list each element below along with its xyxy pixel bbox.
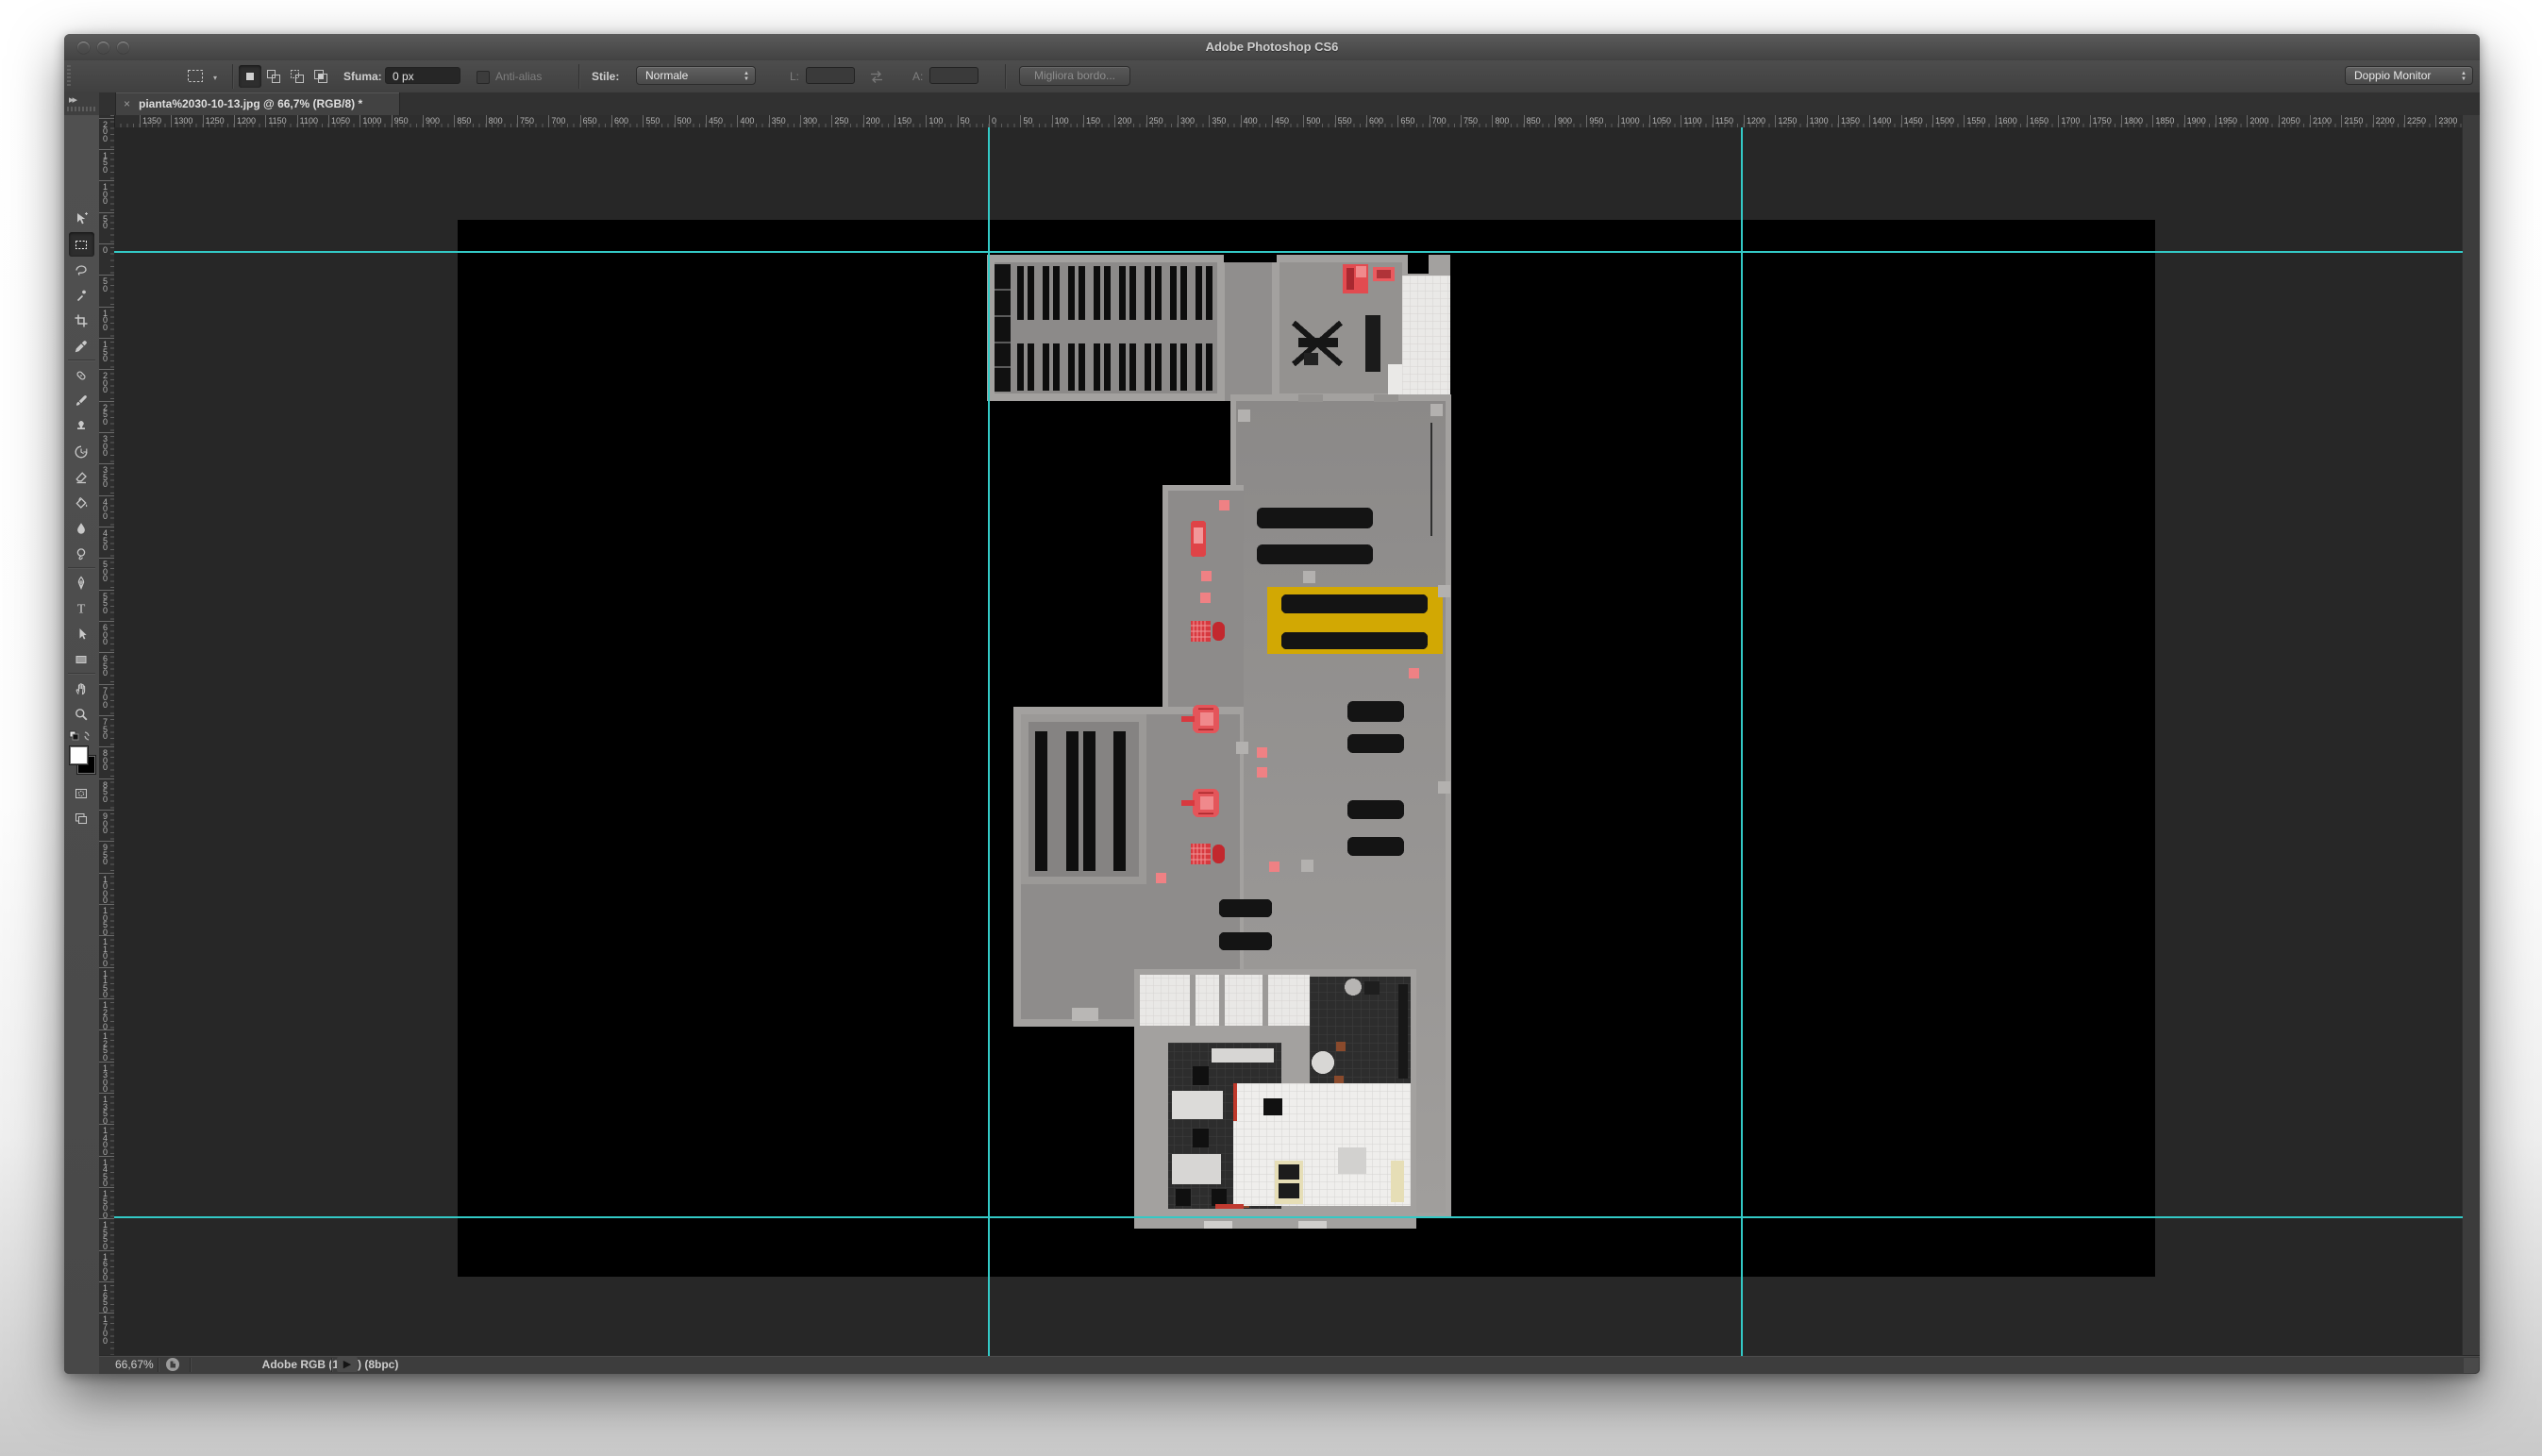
tool-preset-icon[interactable] bbox=[185, 68, 206, 88]
antialias-label: Anti-alias bbox=[495, 70, 542, 83]
refine-edge-button[interactable]: Migliora bordo... bbox=[1019, 66, 1130, 86]
tools-separator bbox=[68, 673, 95, 674]
width-label: L: bbox=[790, 70, 799, 83]
screen-mode-icon bbox=[74, 812, 89, 827]
guide-vertical-right bbox=[1741, 127, 1743, 1356]
history-brush-tool-button[interactable] bbox=[69, 440, 94, 464]
paint-bucket-tool-button[interactable] bbox=[69, 491, 94, 515]
brush-icon bbox=[74, 393, 89, 409]
eyedropper-icon bbox=[74, 339, 89, 354]
brush-tool-button[interactable] bbox=[69, 389, 94, 413]
eraser-tool-button[interactable] bbox=[69, 465, 94, 490]
crop-icon bbox=[74, 313, 89, 328]
options-bar: ▾ Sfuma: 0 px Anti-alias Stile: Normale bbox=[64, 60, 2480, 93]
type-tool-button[interactable]: T bbox=[69, 596, 94, 621]
hand-icon bbox=[74, 681, 89, 696]
history-brush-icon bbox=[74, 444, 89, 460]
status-separator bbox=[331, 1358, 332, 1372]
window-title: Adobe Photoshop CS6 bbox=[64, 40, 2480, 54]
new-selection-button[interactable] bbox=[239, 65, 261, 88]
dodge-tool-button[interactable] bbox=[69, 542, 94, 566]
status-bar: 66,67% Adobe RGB (1998) (8bpc) ▶ bbox=[99, 1355, 2480, 1374]
options-separator bbox=[232, 64, 233, 89]
zoom-icon bbox=[74, 707, 89, 722]
style-label: Stile: bbox=[592, 70, 619, 83]
clone-stamp-tool-button[interactable] bbox=[69, 414, 94, 439]
document-status-icon[interactable] bbox=[165, 1357, 180, 1374]
magic-wand-tool-button[interactable] bbox=[69, 283, 94, 308]
spot-healing-brush-tool-button[interactable] bbox=[69, 363, 94, 388]
document-tab-title: pianta%2030-10-13.jpg @ 66,7% (RGB/8) * bbox=[139, 92, 362, 115]
type-icon: T bbox=[74, 601, 89, 616]
intersect-selection-button[interactable] bbox=[309, 65, 332, 88]
close-tab-icon[interactable]: × bbox=[124, 92, 130, 115]
svg-text:T: T bbox=[77, 603, 86, 617]
status-separator bbox=[158, 1358, 159, 1372]
screen-mode-button[interactable] bbox=[69, 807, 94, 831]
tools-panel-grip[interactable] bbox=[67, 107, 95, 111]
title-bar[interactable]: Adobe Photoshop CS6 bbox=[64, 34, 2480, 61]
rectangular-marquee-tool-button[interactable] bbox=[69, 232, 94, 257]
height-input[interactable] bbox=[929, 67, 978, 84]
lasso-tool-button[interactable] bbox=[69, 258, 94, 282]
options-bar-grip[interactable] bbox=[67, 65, 71, 88]
add-to-selection-button[interactable] bbox=[262, 65, 285, 88]
zoom-level-field[interactable]: 66,67% bbox=[115, 1358, 154, 1371]
move-icon bbox=[74, 211, 89, 226]
move-tool-button[interactable] bbox=[69, 207, 94, 231]
lasso-icon bbox=[74, 262, 89, 277]
window-resize-grip[interactable] bbox=[2464, 1358, 2479, 1373]
pen-icon bbox=[74, 576, 89, 591]
paint-bucket-icon bbox=[74, 495, 89, 510]
photoshop-window: Adobe Photoshop CS6 ▾ Sfuma: 0 px bbox=[64, 34, 2480, 1374]
status-separator bbox=[190, 1358, 191, 1372]
spot-healing-brush-icon bbox=[74, 368, 89, 383]
antialias-checkbox[interactable] bbox=[477, 71, 490, 84]
width-input[interactable] bbox=[806, 67, 855, 84]
rectangle-shape-tool-button[interactable] bbox=[69, 647, 94, 672]
subtract-from-selection-button[interactable] bbox=[286, 65, 309, 88]
quick-mask-button[interactable] bbox=[69, 781, 94, 806]
dodge-icon bbox=[74, 546, 89, 561]
blur-tool-button[interactable] bbox=[69, 516, 94, 541]
guide-vertical-left bbox=[988, 127, 990, 1356]
status-flyout-arrow[interactable]: ▶ bbox=[337, 1357, 358, 1372]
feather-label: Sfuma: bbox=[343, 70, 382, 83]
tools-panel-header[interactable]: ▸▸ bbox=[64, 92, 99, 116]
zoom-tool-button[interactable] bbox=[69, 702, 94, 727]
blur-icon bbox=[74, 521, 89, 536]
rectangular-marquee-icon bbox=[74, 237, 89, 252]
pen-tool-button[interactable] bbox=[69, 571, 94, 595]
style-select[interactable]: Normale ▲▼ bbox=[636, 66, 756, 85]
collapse-panel-icon[interactable]: ▸▸ bbox=[69, 93, 75, 106]
options-separator bbox=[1005, 64, 1006, 89]
guide-horizontal-bottom bbox=[114, 1216, 2463, 1218]
height-label: A: bbox=[912, 70, 923, 83]
clone-stamp-icon bbox=[74, 419, 89, 434]
tools-panel: T bbox=[64, 115, 100, 1374]
ruler-horizontal[interactable]: 1350130012501200115011001050100095090085… bbox=[114, 115, 2463, 128]
hand-tool-button[interactable] bbox=[69, 677, 94, 701]
color-profile-status[interactable]: Adobe RGB (1998) (8bpc) bbox=[203, 1358, 458, 1371]
guide-horizontal-top bbox=[114, 251, 2463, 253]
path-selection-icon bbox=[74, 627, 89, 642]
magic-wand-icon bbox=[74, 288, 89, 303]
floor-plan bbox=[987, 253, 1451, 1229]
document-tab-bar: × pianta%2030-10-13.jpg @ 66,7% (RGB/8) … bbox=[99, 92, 2480, 116]
tools-separator bbox=[68, 360, 95, 360]
ruler-vertical[interactable]: 2001501005005010015020025030035040045050… bbox=[99, 115, 115, 1356]
style-stepper-icon: ▲▼ bbox=[743, 71, 750, 82]
tool-preset-caret-icon[interactable]: ▾ bbox=[213, 74, 217, 82]
crop-tool-button[interactable] bbox=[69, 309, 94, 333]
swap-dimensions-icon[interactable] bbox=[868, 69, 885, 87]
rectangle-shape-icon bbox=[74, 652, 89, 667]
quick-mask-icon bbox=[74, 786, 89, 801]
foreground-color-swatch[interactable] bbox=[69, 745, 89, 765]
workspace-stepper-icon: ▲▼ bbox=[2460, 71, 2467, 82]
canvas-viewport[interactable] bbox=[114, 127, 2463, 1356]
desktop: Adobe Photoshop CS6 ▾ Sfuma: 0 px bbox=[0, 0, 2542, 1456]
feather-input[interactable]: 0 px bbox=[385, 67, 460, 84]
options-separator bbox=[578, 64, 579, 89]
document-tab[interactable]: × pianta%2030-10-13.jpg @ 66,7% (RGB/8) … bbox=[115, 92, 400, 115]
workspace-select[interactable]: Doppio Monitor ▲▼ bbox=[2345, 66, 2473, 85]
path-selection-tool-button[interactable] bbox=[69, 622, 94, 646]
right-panel-strip bbox=[2462, 115, 2480, 1356]
tools-separator bbox=[68, 567, 95, 568]
eraser-icon bbox=[74, 470, 89, 485]
eyedropper-tool-button[interactable] bbox=[69, 334, 94, 359]
